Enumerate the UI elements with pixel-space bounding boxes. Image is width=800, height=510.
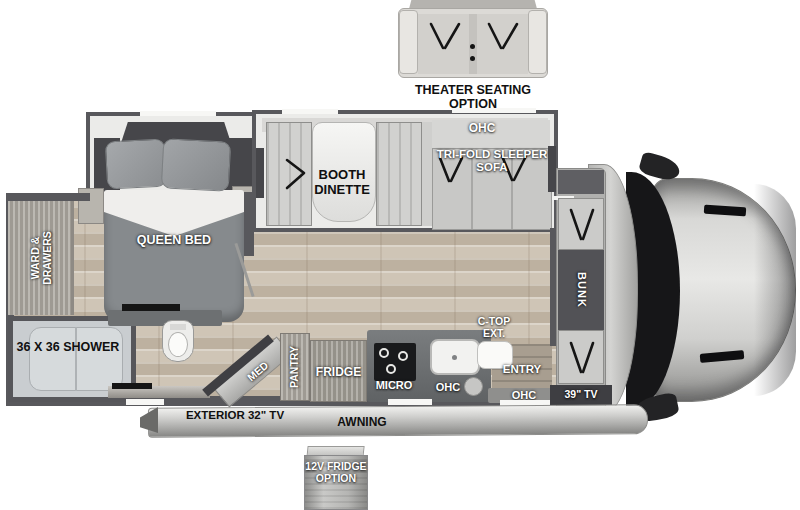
fridge-option-label: 12V FRIDGE OPTION [304, 460, 368, 484]
dinette-label: BOOTH DINETTE [306, 168, 378, 197]
micro-label: MICRO [368, 380, 420, 392]
bench-top-edge [112, 383, 152, 389]
shower-door [75, 327, 77, 391]
toilet-tank [170, 324, 186, 330]
wardrobe-label: WARD & DRAWERS [29, 212, 53, 304]
sofa-label: TRI-FOLD SLEEPER SOFA [434, 148, 550, 174]
bunk-label: BUNK [575, 260, 587, 320]
fridge-label: FRIDGE [310, 366, 367, 379]
bar-sink [464, 377, 483, 396]
queen-bed-label: QUEEN BED [104, 233, 244, 247]
bed-pillow-left [105, 138, 167, 189]
theater-arm-left [399, 10, 418, 74]
sofa-ohc-label: OHC [432, 122, 532, 135]
floorplan-canvas: THEATER SEATING OPTION QUEEN BED OHC TRI… [0, 0, 800, 510]
theater-option-label: THEATER SEATING OPTION [398, 84, 548, 111]
sink-faucet [452, 355, 457, 360]
dinette-bench-right [376, 122, 422, 226]
awning-label: AWNING [322, 416, 402, 429]
cooktop [374, 343, 416, 381]
entry-label: ENTRY [492, 363, 552, 375]
window-sill [126, 399, 164, 405]
slide-divider [422, 122, 432, 226]
theater-seating-option [398, 0, 548, 82]
recline-mark-icon [484, 20, 522, 54]
pantry-label: PANTRY [289, 337, 300, 397]
burner [398, 351, 408, 361]
burner [386, 364, 396, 374]
window-sill [140, 111, 216, 116]
bunk-fold-mark-icon [566, 338, 598, 378]
kitchen-ohc-label: OHC [430, 382, 466, 394]
theater-arm-right [528, 10, 547, 74]
toilet-bowl [168, 332, 188, 357]
bed-pillow-right [161, 138, 232, 191]
tv39-label: 39" TV [550, 389, 612, 400]
window-sill [452, 108, 536, 113]
dinette-window [256, 148, 264, 198]
top-wall-rear [6, 193, 90, 201]
dinette-fold-mark-icon [284, 156, 308, 192]
bunk-top-band [558, 170, 604, 194]
cupholder-dot [470, 44, 475, 49]
recline-mark-icon [426, 20, 464, 54]
fridge-option-box: 12V FRIDGE OPTION [304, 446, 368, 510]
toilet [162, 320, 194, 362]
burner [379, 348, 389, 358]
window-sill [388, 399, 432, 405]
hood-front-shade [754, 184, 796, 396]
bunk-cushion [558, 330, 604, 384]
cupholder-dot [470, 56, 475, 61]
exterior-tv-label: EXTERIOR 32" TV [180, 409, 290, 421]
ctop-ext-label: C-TOP EXT. [466, 316, 522, 339]
bunk-cushion [558, 198, 604, 250]
window-sill [282, 109, 338, 114]
shower-label: 36 X 36 SHOWER [16, 340, 120, 354]
vanity-top-edge [122, 304, 180, 311]
bedroom-divider-wall [244, 192, 254, 256]
bunk-fold-mark-icon [566, 205, 598, 245]
